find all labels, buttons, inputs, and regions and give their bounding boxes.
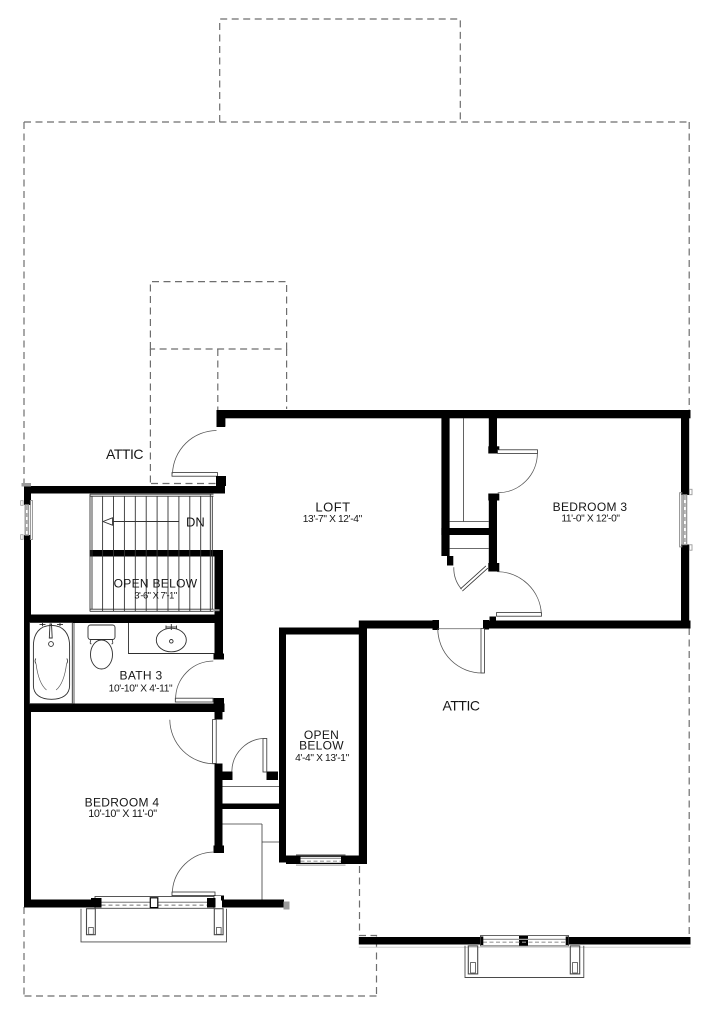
svg-text:4'-4" X 13'-1": 4'-4" X 13'-1"	[295, 753, 350, 764]
svg-text:DN: DN	[186, 515, 205, 530]
svg-text:3'-6" X 7'-1": 3'-6" X 7'-1"	[134, 590, 176, 601]
svg-text:BELOW: BELOW	[299, 739, 344, 753]
svg-text:LOFT: LOFT	[315, 500, 350, 515]
svg-text:10'-10" X 4'-11": 10'-10" X 4'-11"	[109, 684, 173, 695]
svg-text:OPEN BELOW: OPEN BELOW	[114, 577, 198, 591]
svg-text:13'-7" X 12'-4": 13'-7" X 12'-4"	[303, 514, 363, 525]
svg-text:BATH 3: BATH 3	[120, 669, 163, 683]
svg-text:10'-10" X 11'-0": 10'-10" X 11'-0"	[88, 808, 157, 820]
svg-text:ATTIC: ATTIC	[106, 446, 143, 462]
svg-text:11'-0" X 12'-0": 11'-0" X 12'-0"	[561, 514, 620, 525]
svg-text:ATTIC: ATTIC	[443, 698, 480, 714]
svg-text:BEDROOM 3: BEDROOM 3	[553, 500, 628, 514]
